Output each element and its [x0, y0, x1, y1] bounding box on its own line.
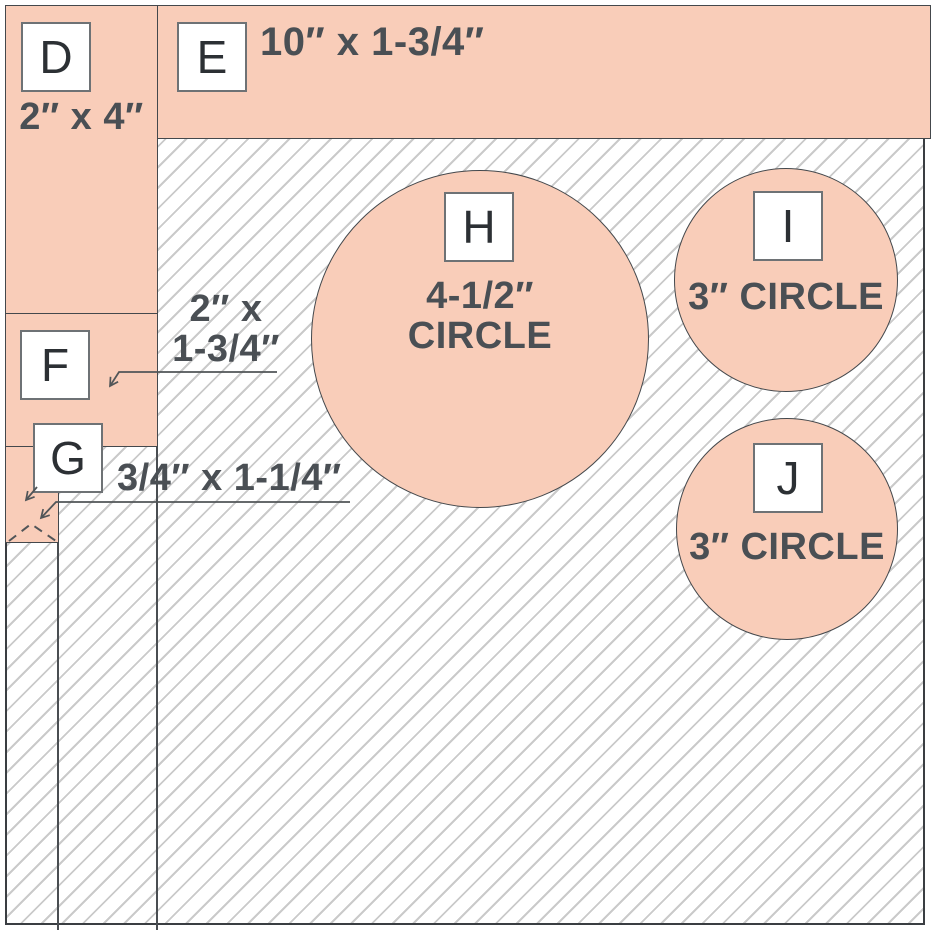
piece-j-dimension: 3″ CIRCLE	[676, 527, 898, 567]
piece-h-label-text: H	[462, 200, 495, 254]
piece-e-dimension: 10″ x 1-3/4″	[260, 22, 484, 62]
piece-e-label: E	[177, 22, 247, 92]
piece-d-label: D	[21, 22, 91, 92]
piece-d-label-text: D	[39, 30, 72, 84]
piece-g-label-text: G	[50, 431, 86, 485]
piece-h-dimension-line2: CIRCLE	[311, 316, 649, 356]
piece-f-dimension: 2″ x 1-3/4″	[146, 289, 306, 369]
piece-f-label-text: F	[41, 338, 69, 392]
piece-g-dimension: 3/4″ x 1-1/4″	[117, 458, 342, 498]
piece-h-label: H	[444, 192, 514, 262]
piece-j-label: J	[753, 443, 823, 513]
piece-f-label: F	[20, 330, 90, 400]
piece-j-label-text: J	[777, 451, 800, 505]
piece-h-dimension-line1: 4-1/2″	[311, 276, 649, 316]
cutting-layout-diagram: 2″ x 4″ 10″ x 1-3/4″ 2″ x 1-3/4″ 3/4″ x …	[0, 0, 934, 934]
piece-g-label: G	[33, 423, 103, 493]
piece-i-label: I	[753, 191, 823, 261]
piece-i-label-text: I	[782, 199, 795, 253]
piece-i-dimension: 3″ CIRCLE	[674, 277, 898, 317]
piece-d-dimension: 2″ x 4″	[5, 97, 158, 137]
piece-e-label-text: E	[197, 30, 228, 84]
piece-f-dimension-line2: 1-3/4″	[146, 329, 306, 369]
piece-h-dimension: 4-1/2″ CIRCLE	[311, 276, 649, 356]
piece-f-dimension-line1: 2″ x	[146, 289, 306, 329]
